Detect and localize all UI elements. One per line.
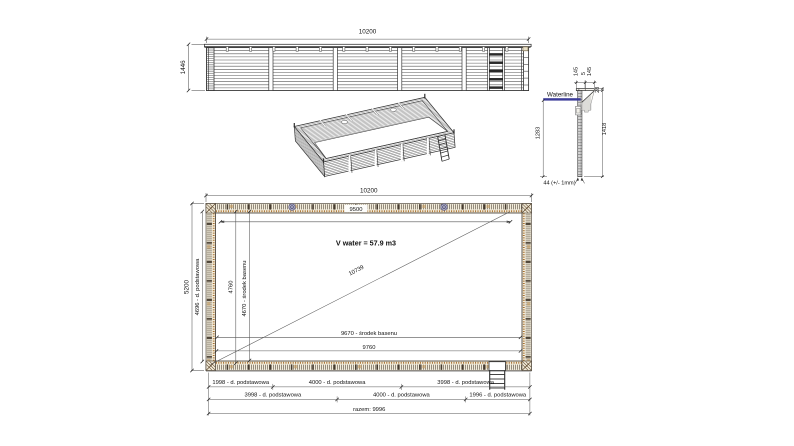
svg-text:28: 28: [595, 87, 601, 93]
svg-text:145: 145: [587, 67, 593, 76]
svg-text:1996 - d. podstawowa: 1996 - d. podstawowa: [469, 393, 526, 399]
svg-text:44 (+/- 1mm): 44 (+/- 1mm): [543, 180, 575, 186]
svg-text:razem: 9996: razem: 9996: [353, 407, 385, 413]
svg-text:V water = 57.9 m3: V water = 57.9 m3: [336, 239, 396, 248]
svg-text:1283: 1283: [536, 127, 542, 139]
svg-text:4000 - d. podstawowa: 4000 - d. podstawowa: [373, 393, 430, 399]
svg-text:145: 145: [574, 67, 580, 76]
svg-text:9500: 9500: [350, 207, 363, 213]
svg-text:3998 - d. podstawowa: 3998 - d. podstawowa: [244, 393, 301, 399]
svg-text:5200: 5200: [184, 280, 191, 295]
svg-text:10739: 10739: [348, 265, 365, 278]
svg-text:10200: 10200: [360, 188, 378, 195]
svg-text:3998 - d. podstawowa: 3998 - d. podstawowa: [437, 380, 494, 386]
svg-text:9760: 9760: [363, 345, 376, 351]
svg-text:4760: 4760: [228, 281, 234, 294]
svg-text:4000 - d. podstawowa: 4000 - d. podstawowa: [309, 380, 366, 386]
svg-text:9670 - środek basenu: 9670 - środek basenu: [341, 331, 397, 337]
svg-text:1446: 1446: [180, 60, 187, 75]
svg-text:4696 - d. podstawowa: 4696 - d. podstawowa: [195, 258, 201, 315]
svg-text:10200: 10200: [359, 29, 377, 36]
svg-text:1418: 1418: [602, 123, 608, 135]
svg-text:Waterline: Waterline: [547, 91, 573, 98]
svg-text:4670 - środek basenu: 4670 - środek basenu: [242, 260, 248, 316]
svg-text:1998 - d. podstawowa: 1998 - d. podstawowa: [212, 380, 269, 386]
